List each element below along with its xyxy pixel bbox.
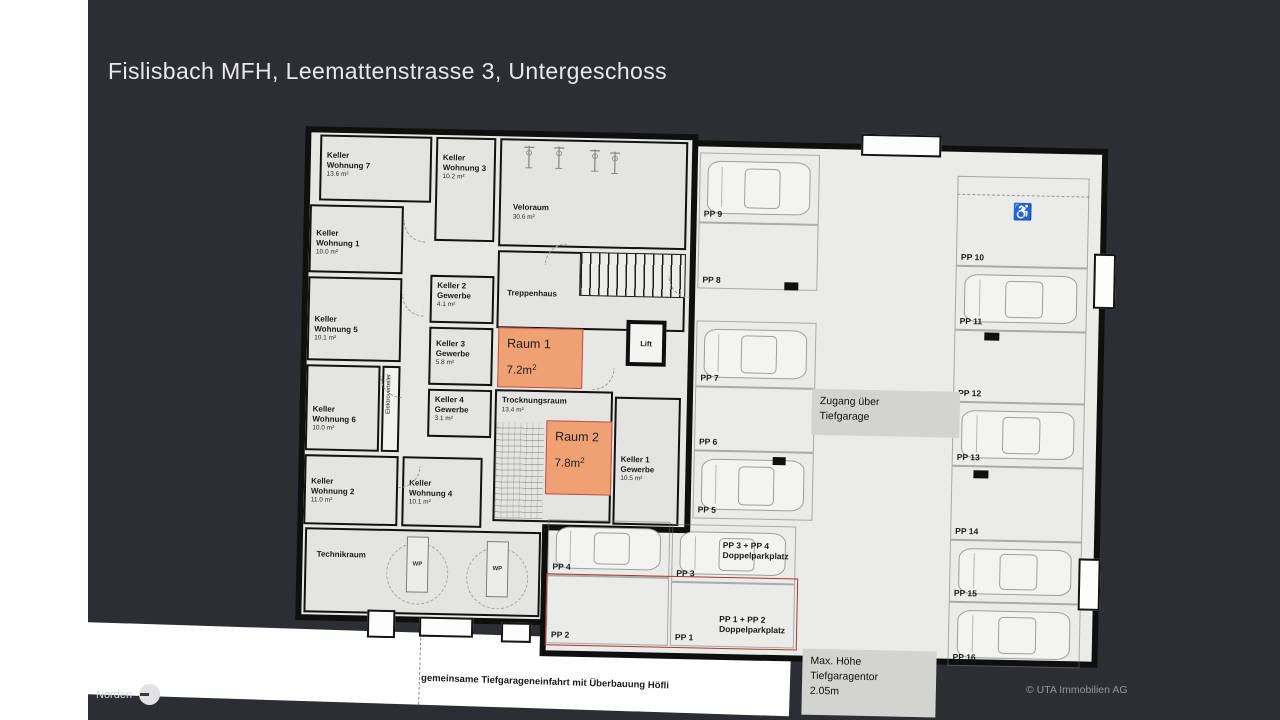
foundation-block — [367, 610, 396, 639]
hatched-ramp-area — [494, 422, 544, 519]
parking-spot-pp4: PP 4 — [547, 519, 670, 578]
bicycle-icon — [553, 143, 566, 171]
room-keller-wohnung-7: Keller Wohnung 7 13.6 m² — [319, 134, 432, 202]
room-keller-wohnung-6: Keller Wohnung 6 10.0 m² — [305, 364, 381, 452]
parking-spot-pp9: PP 9 — [699, 152, 820, 224]
wall-niche — [1078, 558, 1101, 610]
bicycle-icon — [609, 148, 622, 176]
parking-spot-pp8: PP 8 — [697, 222, 818, 290]
room-keller-4-gewerbe: Keller 4 Gewerbe 3.1 m² — [427, 389, 492, 438]
room-keller-3-gewerbe: Keller 3 Gewerbe 5.8 m² — [428, 327, 493, 386]
bicycle-icon — [589, 146, 602, 174]
parking-spot-pp5: PP 5 — [692, 450, 813, 520]
room-keller-wohnung-2: Keller Wohnung 2 11.0 m² — [303, 454, 398, 526]
north-label: Norden — [96, 689, 132, 701]
room-keller-1-gewerbe: Keller 1 Gewerbe 10.5 m² — [612, 397, 681, 526]
floor-plan: gemeinsame Tiefgarageneinfahrt mit Überb… — [289, 122, 1151, 720]
parking-spot-pp6: PP 6 — [694, 386, 815, 452]
parking-spot-pp10: ♿ PP 10 — [956, 176, 1090, 269]
parking-spot-pp15: PP 15 — [949, 540, 1082, 605]
heat-pump-unit: WP — [406, 536, 429, 592]
double-park-red-outline — [545, 573, 798, 650]
parking-spot-pp7: PP 7 — [695, 320, 816, 388]
room-keller-2-gewerbe: Keller 2 Gewerbe 4.1 m² — [429, 275, 494, 324]
room-lift: Lift — [626, 320, 667, 367]
parking-spot-pp14: PP 14 — [950, 466, 1084, 543]
car-icon — [701, 459, 805, 512]
room-keller-wohnung-3: Keller Wohnung 3 10.2 m² — [434, 137, 496, 242]
heat-pump-unit: WP — [486, 541, 509, 597]
left-margin-strip — [0, 0, 88, 720]
room-keller-wohnung-1: Keller Wohnung 1 10.0 m² — [309, 204, 404, 274]
wall-niche — [1093, 254, 1116, 309]
bicycle-icon — [523, 143, 536, 171]
room-keller-wohnung-5: Keller Wohnung 5 10.1 m² — [307, 276, 403, 362]
copyright-text: © UTA Immobilien AG — [1026, 684, 1128, 696]
north-compass-icon — [139, 684, 160, 705]
annotation-max-hoehe: Max. Höhe Tiefgaragentor 2.05m — [801, 649, 936, 718]
pillar — [773, 457, 786, 465]
car-icon — [707, 161, 811, 215]
foundation-block — [501, 622, 531, 643]
parking-spot-pp16: PP 16 — [947, 602, 1080, 669]
double-parking-label-pp3-pp4: PP 3 + PP 4 Doppelparkplatz — [722, 540, 789, 561]
highlight-raum-2: Raum 2 7.8m2 — [545, 420, 613, 495]
pillar — [984, 332, 999, 340]
foundation-block — [419, 617, 473, 638]
highlight-raum-1: Raum 1 7.2m2 — [497, 327, 583, 389]
garage-top-opening — [861, 134, 941, 158]
wheelchair-icon: ♿ — [958, 201, 1088, 224]
parking-spot-pp11: PP 11 — [954, 266, 1087, 333]
parking-spot-pp12: PP 12 — [953, 330, 1086, 405]
page-title: Fislisbach MFH, Leemattenstrasse 3, Unte… — [108, 58, 667, 85]
parking-spot-pp13: PP 13 — [952, 402, 1085, 469]
pillar — [973, 470, 988, 478]
north-indicator: Norden — [96, 684, 160, 705]
annotation-zugang-tiefgarage: Zugang über Tiefgarage — [811, 389, 960, 438]
car-icon — [703, 329, 807, 380]
pillar — [784, 282, 798, 290]
car-icon — [556, 526, 661, 570]
